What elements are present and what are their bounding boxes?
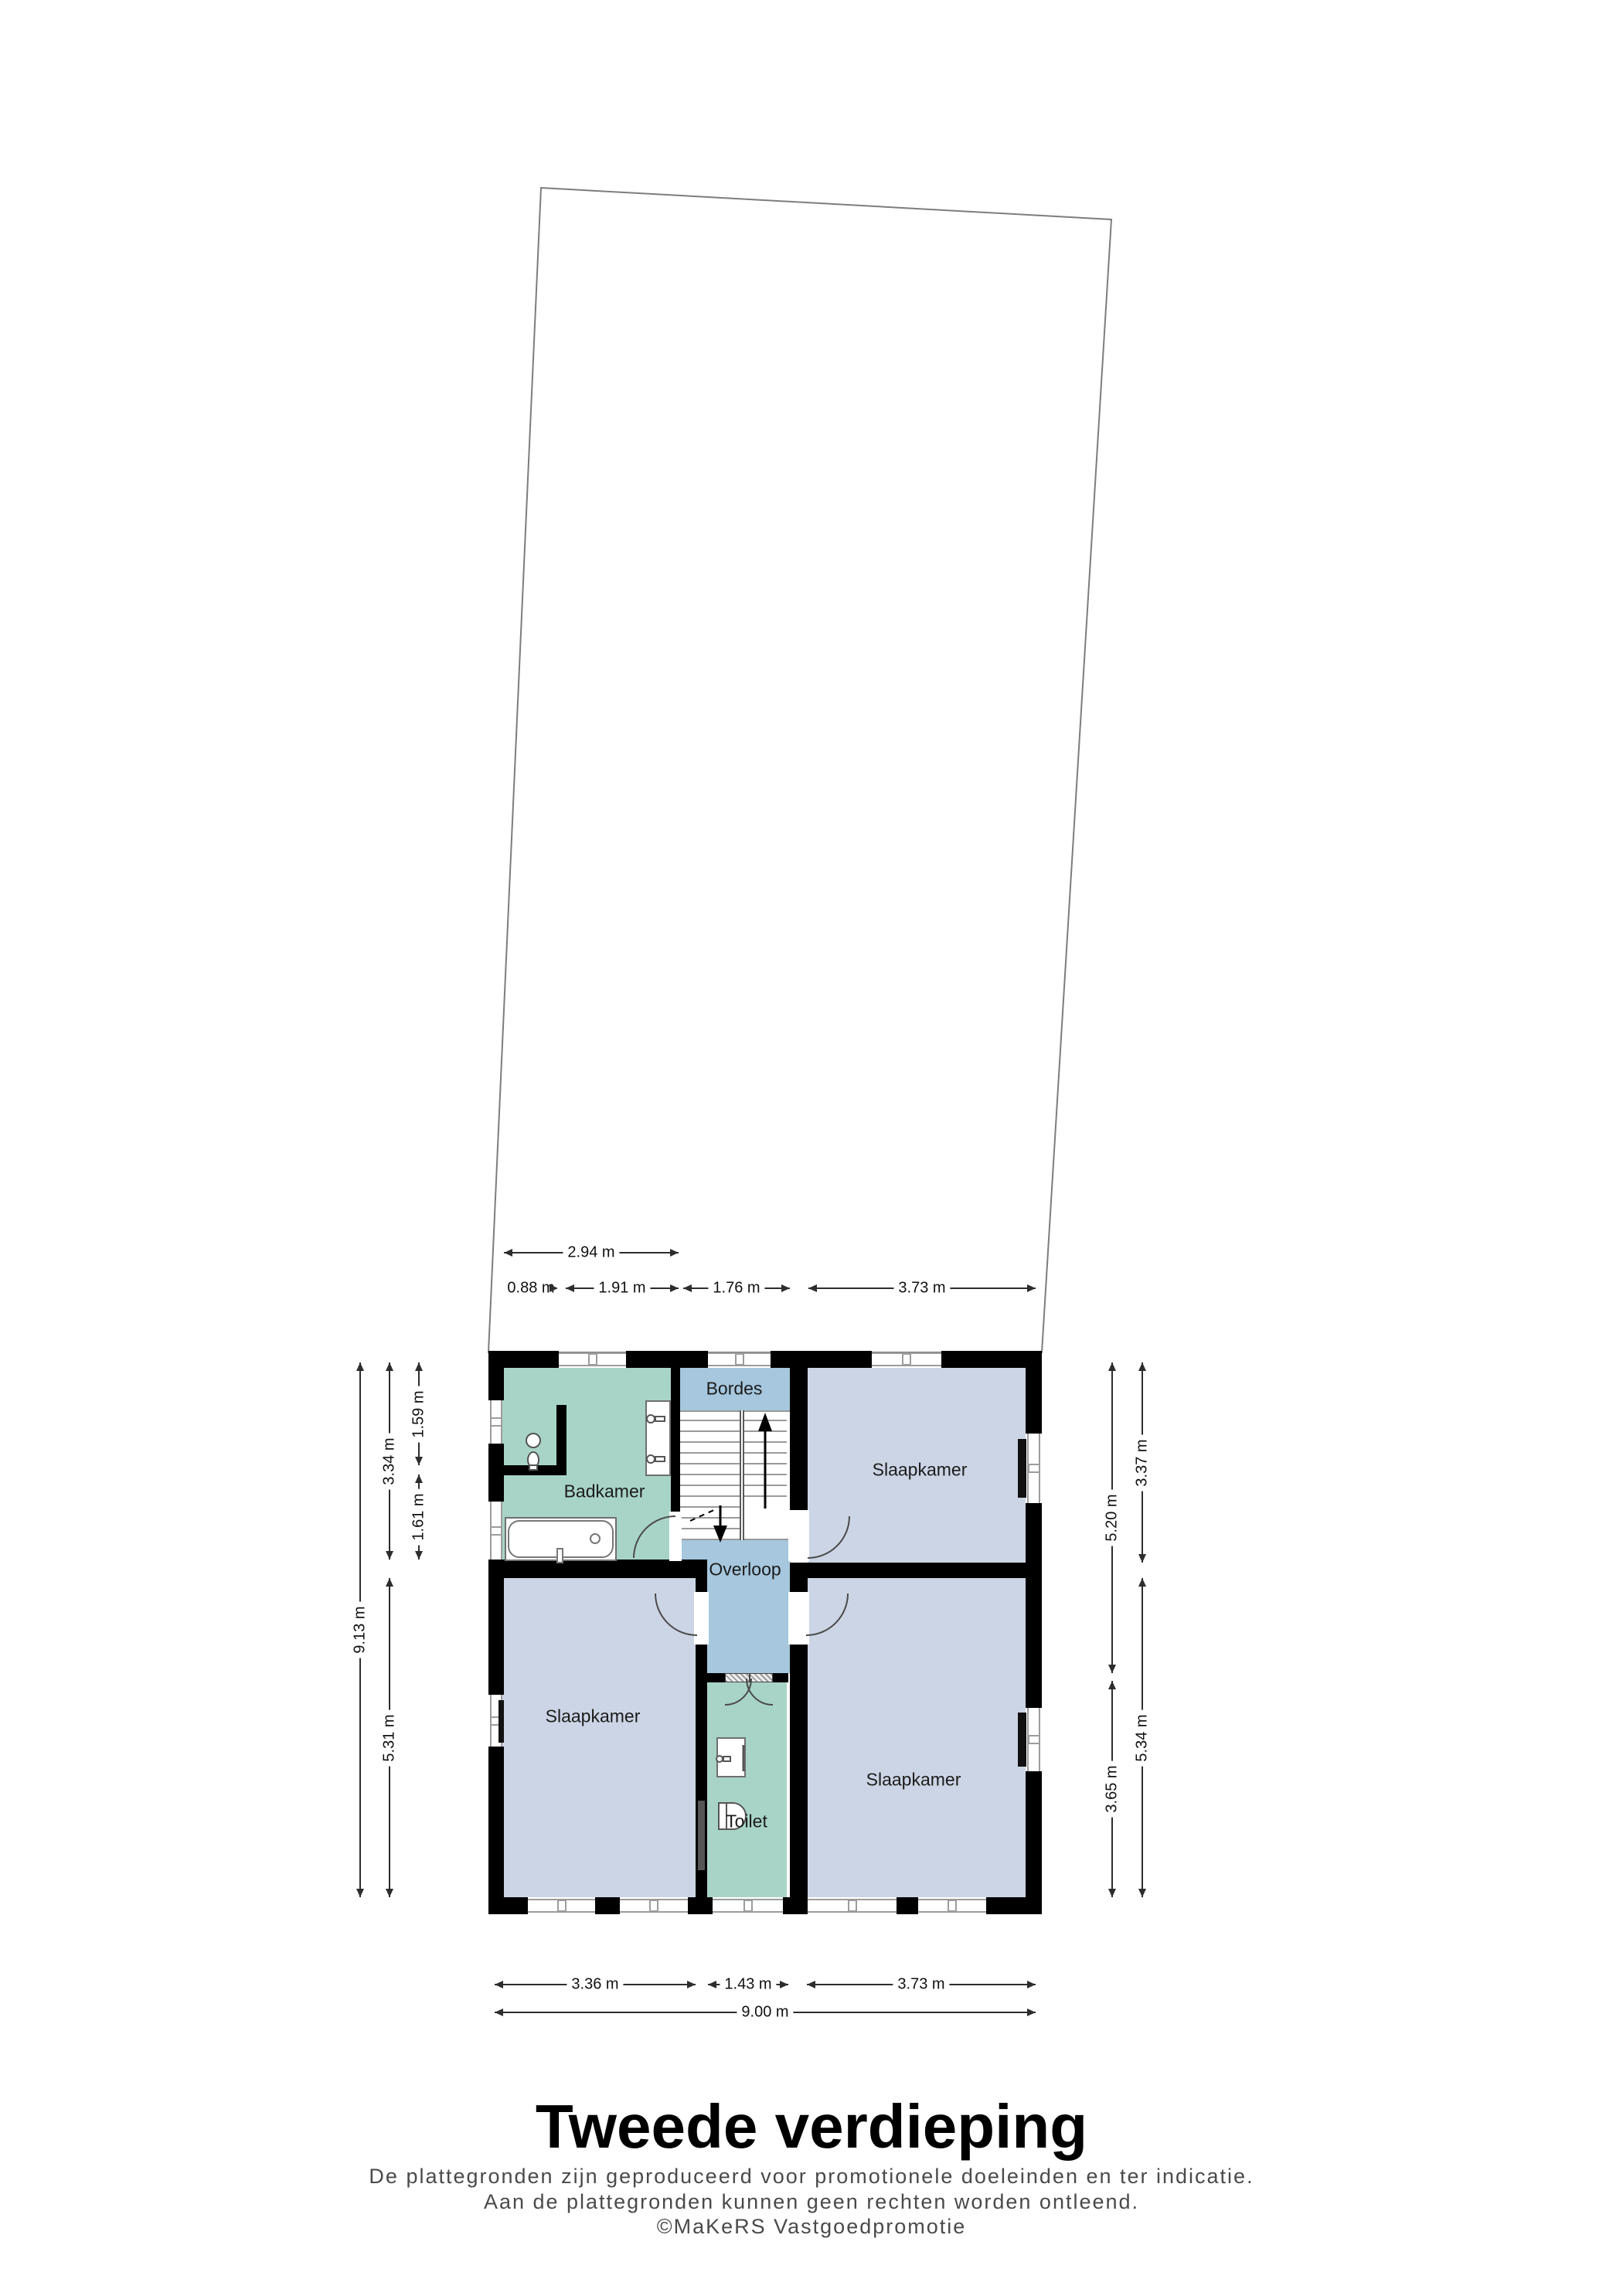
toilet-sink-faucet-icon [716,1745,743,1771]
disclaimer-line-3: ©MaKeRS Vastgoedpromotie [0,2215,1623,2239]
bathtub-interior [509,1521,613,1563]
nook-toilet-icon [526,1434,540,1470]
disclaimer-line-1: De plattegronden zijn geproduceerd voor … [0,2165,1623,2189]
stair-up-arrow-head [758,1413,772,1431]
vanity-faucet-icon [647,1415,665,1463]
stair-down-dashed-line [690,1509,717,1521]
door-arc-slaapkamer-bottom-right [806,1594,848,1635]
page-title: Tweede verdieping [0,2091,1623,2162]
room-label-slaapkamer-bottom-left: Slaapkamer [546,1706,641,1727]
floorplan-page: Bordes Badkamer Overloop Slaapkamer Slaa… [0,0,1623,2296]
door-arc-badkamer [634,1516,675,1558]
door-arc-slaapkamer-bottom-left [655,1594,697,1635]
room-label-bordes: Bordes [706,1379,763,1400]
room-label-toilet: Toilet [726,1811,767,1832]
room-label-slaapkamer-top-right: Slaapkamer [873,1460,968,1481]
disclaimer-line-2: Aan de plattegronden kunnen geen rechten… [0,2190,1623,2214]
door-arc-slaapkamer-top-right [808,1516,849,1558]
room-label-overloop: Overloop [709,1560,781,1580]
stair-down-arrow-head [713,1526,727,1543]
room-label-badkamer: Badkamer [564,1481,645,1502]
room-label-slaapkamer-bottom-right: Slaapkamer [866,1770,961,1791]
